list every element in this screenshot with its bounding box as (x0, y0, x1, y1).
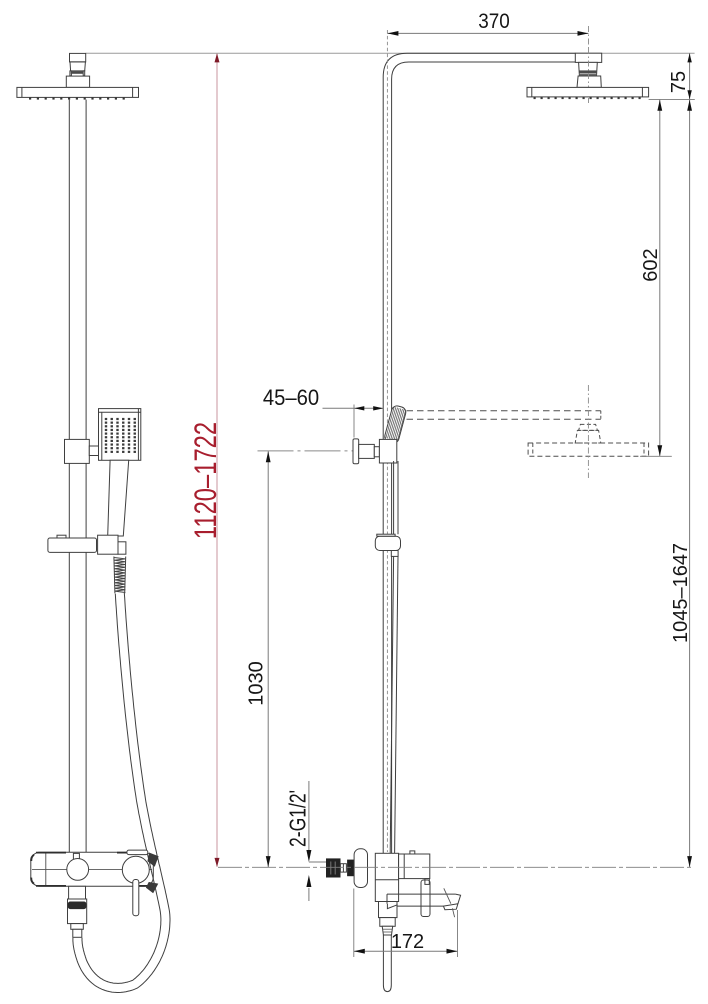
svg-text:45–60: 45–60 (263, 385, 319, 410)
svg-text:1030: 1030 (246, 661, 268, 706)
svg-text:602: 602 (640, 248, 662, 281)
svg-text:1120–1722: 1120–1722 (188, 422, 223, 539)
svg-text:370: 370 (478, 10, 510, 33)
svg-text:75: 75 (668, 71, 690, 93)
svg-text:172: 172 (391, 931, 424, 953)
svg-text:2-G1/2': 2-G1/2' (285, 790, 311, 847)
svg-text:1045–1647: 1045–1647 (670, 543, 692, 643)
